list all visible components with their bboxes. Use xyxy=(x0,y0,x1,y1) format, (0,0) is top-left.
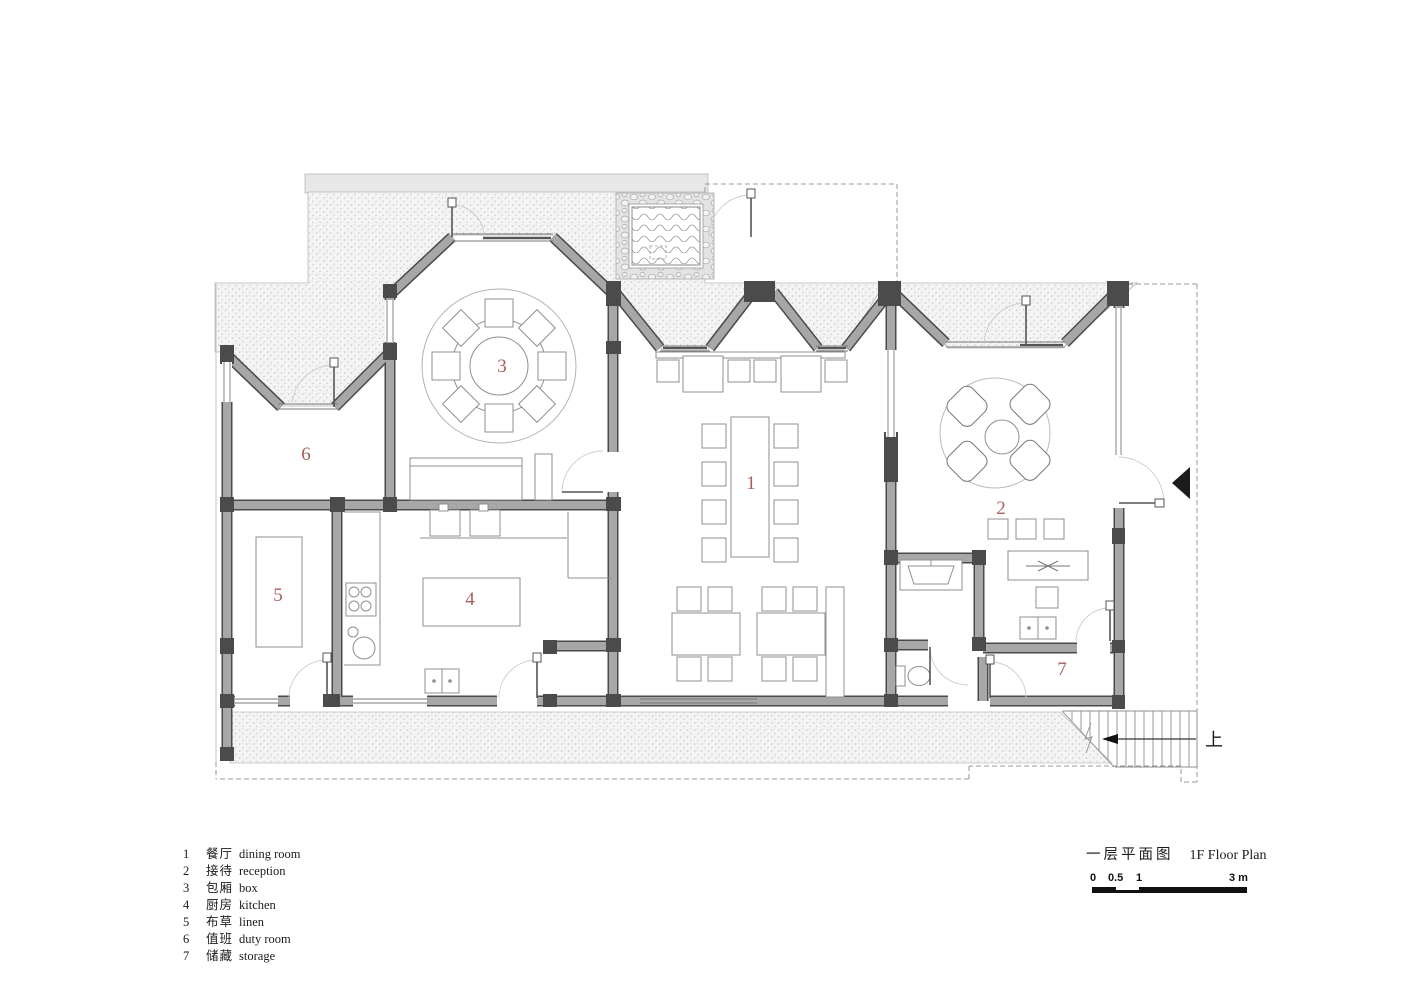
legend-zh: 包厢 xyxy=(206,880,233,897)
legend-zh: 餐厅 xyxy=(206,846,233,863)
legend-item-linen: 5 布草 linen xyxy=(183,914,300,931)
legend-en: box xyxy=(239,880,258,897)
scale-tick-05: 0.5 xyxy=(1108,872,1123,884)
legend-item-duty-room: 6 值班 duty room xyxy=(183,931,300,948)
stair-direction-arrow xyxy=(1102,734,1118,744)
scale-segment xyxy=(1116,890,1139,893)
legend-zh: 值班 xyxy=(206,931,233,948)
long-table-room1 xyxy=(656,352,847,697)
scale-tick-0: 0 xyxy=(1090,872,1096,884)
legend-zh: 厨房 xyxy=(206,897,233,914)
drawing-title: 一层平面图 1F Floor Plan xyxy=(1086,843,1267,864)
legend-en: kitchen xyxy=(239,897,276,914)
legend-item-reception: 2 接待 reception xyxy=(183,863,300,880)
water-feature xyxy=(616,193,714,279)
legend: 1 餐厅 dining room 2 接待 reception 3 包厢 box… xyxy=(183,846,300,965)
round-table-room3 xyxy=(410,289,576,500)
legend-en: storage xyxy=(239,948,275,965)
legend-zh: 储藏 xyxy=(206,948,233,965)
drawing-title-zh: 一层平面图 xyxy=(1086,847,1174,863)
room-label-box: 3 xyxy=(497,356,507,377)
room-label-storage: 7 xyxy=(1057,659,1067,680)
floor-plan-page: 1 2 3 4 5 6 7 上 1 餐厅 dining room 2 接待 re… xyxy=(0,0,1414,1000)
legend-number: 5 xyxy=(183,914,197,931)
legend-number: 1 xyxy=(183,846,197,863)
legend-en: duty room xyxy=(239,931,291,948)
bathroom-fixtures xyxy=(896,560,962,686)
scale-segment xyxy=(1139,887,1247,893)
legend-item-kitchen: 4 厨房 kitchen xyxy=(183,897,300,914)
room-label-kitchen: 4 xyxy=(465,589,475,610)
room-label-dining: 1 xyxy=(746,473,756,494)
storage-fixtures xyxy=(1008,551,1088,639)
legend-number: 6 xyxy=(183,931,197,948)
legend-en: dining room xyxy=(239,846,300,863)
legend-item-storage: 7 储藏 storage xyxy=(183,948,300,965)
scale-tick-3m: 3 m xyxy=(1229,872,1248,884)
legend-en: linen xyxy=(239,914,264,931)
scale-bar: 0 0.5 1 3 m xyxy=(1092,872,1262,898)
room-label-linen: 5 xyxy=(273,585,283,606)
room-label-reception: 2 xyxy=(996,498,1006,519)
kitchen-fixtures xyxy=(344,504,612,693)
legend-item-dining: 1 餐厅 dining room xyxy=(183,846,300,863)
legend-zh: 接待 xyxy=(206,863,233,880)
drawing-title-en: 1F Floor Plan xyxy=(1190,848,1267,863)
legend-number: 7 xyxy=(183,948,197,965)
legend-item-box: 3 包厢 box xyxy=(183,880,300,897)
scale-segment xyxy=(1092,887,1116,893)
legend-number: 4 xyxy=(183,897,197,914)
legend-number: 3 xyxy=(183,880,197,897)
scale-tick-1: 1 xyxy=(1136,872,1142,884)
legend-zh: 布草 xyxy=(206,914,233,931)
entrance-arrow xyxy=(1172,467,1190,499)
legend-en: reception xyxy=(239,863,286,880)
stairs-up-label: 上 xyxy=(1205,730,1223,750)
room-label-duty: 6 xyxy=(301,444,311,465)
legend-number: 2 xyxy=(183,863,197,880)
